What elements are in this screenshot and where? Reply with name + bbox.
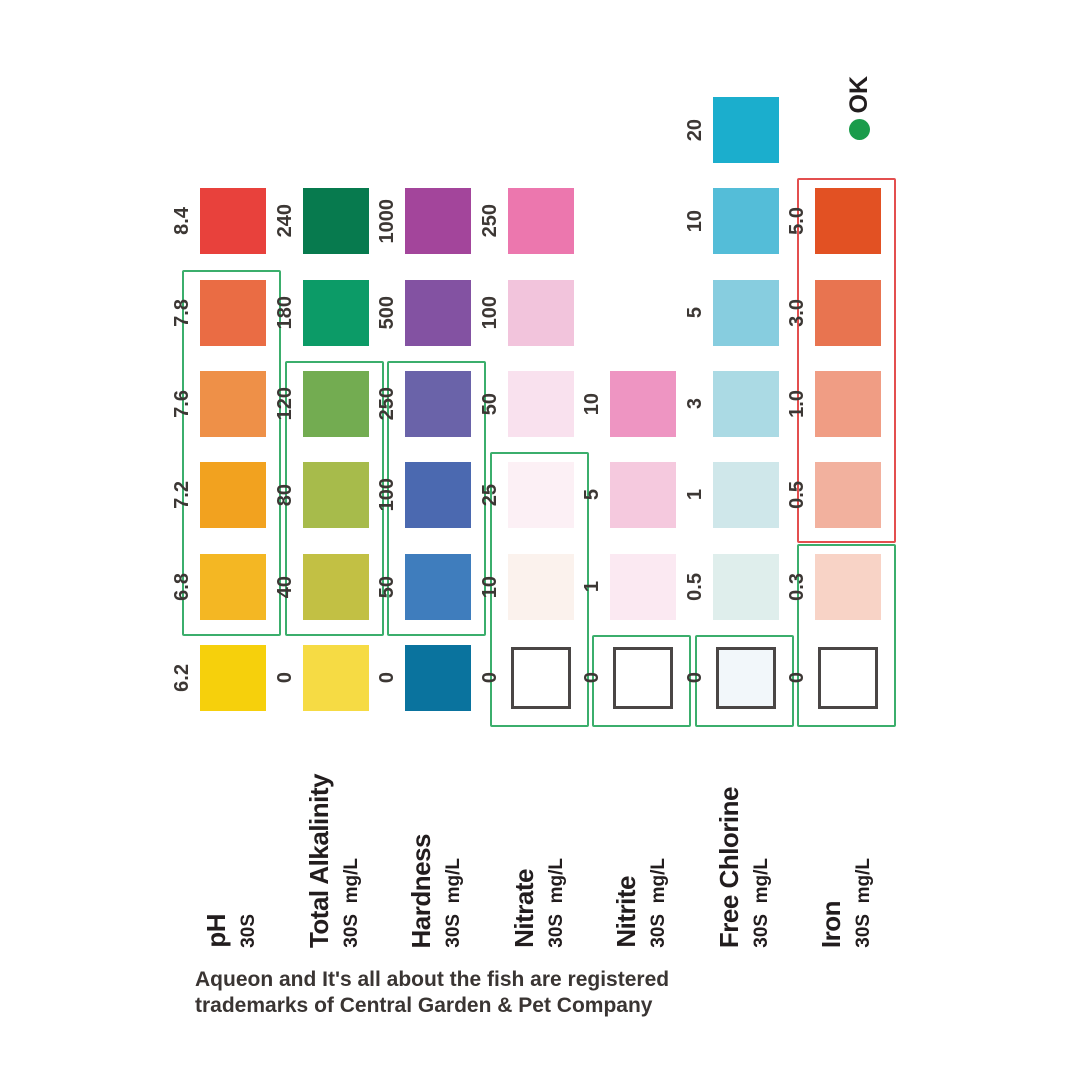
free-chlorine-value-label: 1 — [679, 462, 711, 528]
free-chlorine-swatch — [713, 371, 779, 437]
hardness-value-text: 50 — [376, 576, 399, 598]
hardness-swatch — [405, 462, 471, 528]
nitrate-value-label: 10 — [474, 554, 506, 620]
free-chlorine-swatch — [713, 280, 779, 346]
total-alkalinity-value-text: 240 — [274, 204, 297, 237]
total-alkalinity-value-label: 180 — [269, 280, 301, 346]
hardness-swatch — [405, 554, 471, 620]
nitrate-value-label: 25 — [474, 462, 506, 528]
iron-value-text: 0 — [786, 672, 809, 683]
footer-trademark: Aqueon and It's all about the fish are r… — [195, 967, 669, 1018]
free-chlorine-value-text: 20 — [684, 119, 707, 141]
iron-value-label: 0.3 — [781, 554, 813, 620]
nitrate-swatch — [511, 647, 571, 709]
free-chlorine-value-text: 0.5 — [684, 573, 707, 601]
nitrate-value-text: 100 — [479, 296, 502, 329]
ph-swatch — [200, 462, 266, 528]
ph-swatch — [200, 371, 266, 437]
hardness-value-label: 50 — [371, 554, 403, 620]
ok-dot — [849, 119, 870, 140]
free-chlorine-value-text: 0 — [684, 672, 707, 683]
free-chlorine-value-text: 1 — [684, 489, 707, 500]
total-alkalinity-duration-unit: 30S mg/L — [341, 858, 363, 948]
free-chlorine-value-label: 3 — [679, 371, 711, 437]
total-alkalinity-value-text: 80 — [274, 484, 297, 506]
column-label-ph: pH30S — [202, 748, 260, 948]
footer-line1: Aqueon and It's all about the fish are r… — [195, 967, 669, 993]
test-strip-color-chart: 8.47.87.67.26.86.2pH30S24018012080400Tot… — [0, 0, 1080, 1080]
total-alkalinity-value-text: 180 — [274, 296, 297, 329]
iron-swatch — [815, 280, 881, 346]
iron-value-label: 1.0 — [781, 371, 813, 437]
hardness-value-label: 0 — [371, 645, 403, 711]
total-alkalinity-value-label: 0 — [269, 645, 301, 711]
hardness-value-text: 1000 — [376, 199, 399, 244]
free-chlorine-swatch — [713, 554, 779, 620]
column-label-nitrate: Nitrate30S mg/L — [510, 748, 568, 948]
nitrate-swatch — [508, 554, 574, 620]
ph-value-label: 6.2 — [166, 645, 198, 711]
free-chlorine-value-label: 10 — [679, 188, 711, 254]
iron-name: Iron — [817, 901, 846, 948]
hardness-value-label: 1000 — [371, 188, 403, 254]
nitrate-swatch — [508, 188, 574, 254]
total-alkalinity-value-text: 40 — [274, 576, 297, 598]
nitrite-swatch — [610, 371, 676, 437]
total-alkalinity-swatch — [303, 645, 369, 711]
free-chlorine-value-text: 10 — [684, 210, 707, 232]
nitrate-value-text: 250 — [479, 204, 502, 237]
free-chlorine-name: Free Chlorine — [715, 787, 744, 948]
nitrate-swatch — [508, 371, 574, 437]
free-chlorine-swatch — [716, 647, 776, 709]
nitrate-value-text: 10 — [479, 576, 502, 598]
nitrite-name: Nitrite — [612, 876, 641, 948]
nitrite-duration-unit: 30S mg/L — [648, 858, 670, 948]
ph-value-text: 7.6 — [171, 390, 194, 418]
hardness-swatch — [405, 645, 471, 711]
footer-line2: trademarks of Central Garden & Pet Compa… — [195, 993, 669, 1019]
nitrate-value-label: 50 — [474, 371, 506, 437]
nitrite-value-text: 5 — [581, 489, 604, 500]
ph-name: pH — [202, 914, 231, 948]
nitrate-value-label: 0 — [474, 645, 506, 711]
free-chlorine-value-label: 20 — [679, 97, 711, 163]
total-alkalinity-value-label: 80 — [269, 462, 301, 528]
free-chlorine-value-label: 0.5 — [679, 554, 711, 620]
hardness-swatch — [405, 371, 471, 437]
free-chlorine-value-label: 0 — [679, 645, 711, 711]
nitrite-value-text: 1 — [581, 581, 604, 592]
hardness-swatch — [405, 188, 471, 254]
ph-swatch — [200, 554, 266, 620]
nitrate-value-label: 100 — [474, 280, 506, 346]
free-chlorine-duration-unit: 30S mg/L — [751, 858, 773, 948]
nitrite-value-text: 10 — [581, 393, 604, 415]
iron-duration-unit: 30S mg/L — [853, 858, 875, 948]
column-label-nitrite: Nitrite30S mg/L — [612, 748, 670, 948]
column-label-hardness: Hardness30S mg/L — [407, 748, 465, 948]
hardness-swatch — [405, 280, 471, 346]
iron-swatch — [815, 554, 881, 620]
ph-value-text: 7.2 — [171, 481, 194, 509]
free-chlorine-value-label: 5 — [679, 280, 711, 346]
total-alkalinity-name: Total Alkalinity — [305, 774, 334, 948]
iron-value-label: 5.0 — [781, 188, 813, 254]
total-alkalinity-swatch — [303, 188, 369, 254]
hardness-value-text: 100 — [376, 478, 399, 511]
hardness-name: Hardness — [407, 834, 436, 949]
total-alkalinity-value-label: 240 — [269, 188, 301, 254]
nitrite-value-label: 10 — [576, 371, 608, 437]
ph-value-label: 7.8 — [166, 280, 198, 346]
total-alkalinity-value-label: 120 — [269, 371, 301, 437]
ph-value-text: 8.4 — [171, 207, 194, 235]
iron-value-text: 3.0 — [786, 299, 809, 327]
total-alkalinity-swatch — [303, 280, 369, 346]
iron-swatch — [818, 647, 878, 709]
iron-value-text: 1.0 — [786, 390, 809, 418]
column-label-free-chlorine: Free Chlorine30S mg/L — [715, 748, 773, 948]
nitrate-value-text: 0 — [479, 672, 502, 683]
ph-value-label: 7.6 — [166, 371, 198, 437]
ph-swatch — [200, 645, 266, 711]
ph-value-text: 6.2 — [171, 664, 194, 692]
nitrite-value-text: 0 — [581, 672, 604, 683]
hardness-value-label: 100 — [371, 462, 403, 528]
ph-value-label: 6.8 — [166, 554, 198, 620]
column-label-iron: Iron30S mg/L — [817, 748, 875, 948]
total-alkalinity-swatch — [303, 371, 369, 437]
legend-ok: OK — [845, 76, 874, 140]
ph-swatch — [200, 280, 266, 346]
nitrite-swatch — [610, 462, 676, 528]
free-chlorine-swatch — [713, 97, 779, 163]
ph-value-text: 7.8 — [171, 299, 194, 327]
total-alkalinity-value-text: 0 — [274, 672, 297, 683]
iron-value-label: 3.0 — [781, 280, 813, 346]
hardness-value-label: 500 — [371, 280, 403, 346]
hardness-duration-unit: 30S mg/L — [443, 858, 465, 948]
nitrite-value-label: 5 — [576, 462, 608, 528]
free-chlorine-value-text: 5 — [684, 307, 707, 318]
ph-value-text: 6.8 — [171, 573, 194, 601]
iron-value-text: 0.3 — [786, 573, 809, 601]
hardness-value-label: 250 — [371, 371, 403, 437]
nitrate-swatch — [508, 280, 574, 346]
hardness-value-text: 0 — [376, 672, 399, 683]
column-label-total-alkalinity: Total Alkalinity30S mg/L — [305, 748, 363, 948]
nitrate-name: Nitrate — [510, 869, 539, 948]
nitrite-value-label: 1 — [576, 554, 608, 620]
ph-duration-unit: 30S — [238, 914, 260, 948]
nitrate-value-text: 50 — [479, 393, 502, 415]
iron-swatch — [815, 462, 881, 528]
total-alkalinity-value-label: 40 — [269, 554, 301, 620]
total-alkalinity-swatch — [303, 554, 369, 620]
iron-swatch — [815, 371, 881, 437]
nitrite-swatch — [613, 647, 673, 709]
ph-swatch — [200, 188, 266, 254]
total-alkalinity-value-text: 120 — [274, 387, 297, 420]
ok-label: OK — [845, 76, 874, 114]
total-alkalinity-swatch — [303, 462, 369, 528]
hardness-value-text: 250 — [376, 387, 399, 420]
nitrite-value-label: 0 — [576, 645, 608, 711]
ph-value-label: 7.2 — [166, 462, 198, 528]
iron-value-text: 5.0 — [786, 207, 809, 235]
hardness-value-text: 500 — [376, 296, 399, 329]
swatch-grid: 8.47.87.67.26.86.2pH30S24018012080400Tot… — [0, 0, 1080, 1080]
iron-value-label: 0 — [781, 645, 813, 711]
iron-value-label: 0.5 — [781, 462, 813, 528]
iron-value-text: 0.5 — [786, 481, 809, 509]
iron-swatch — [815, 188, 881, 254]
nitrate-swatch — [508, 462, 574, 528]
free-chlorine-swatch — [713, 188, 779, 254]
nitrate-value-label: 250 — [474, 188, 506, 254]
ph-value-label: 8.4 — [166, 188, 198, 254]
free-chlorine-value-text: 3 — [684, 398, 707, 409]
nitrite-swatch — [610, 554, 676, 620]
nitrate-value-text: 25 — [479, 484, 502, 506]
nitrate-duration-unit: 30S mg/L — [546, 858, 568, 948]
free-chlorine-swatch — [713, 462, 779, 528]
